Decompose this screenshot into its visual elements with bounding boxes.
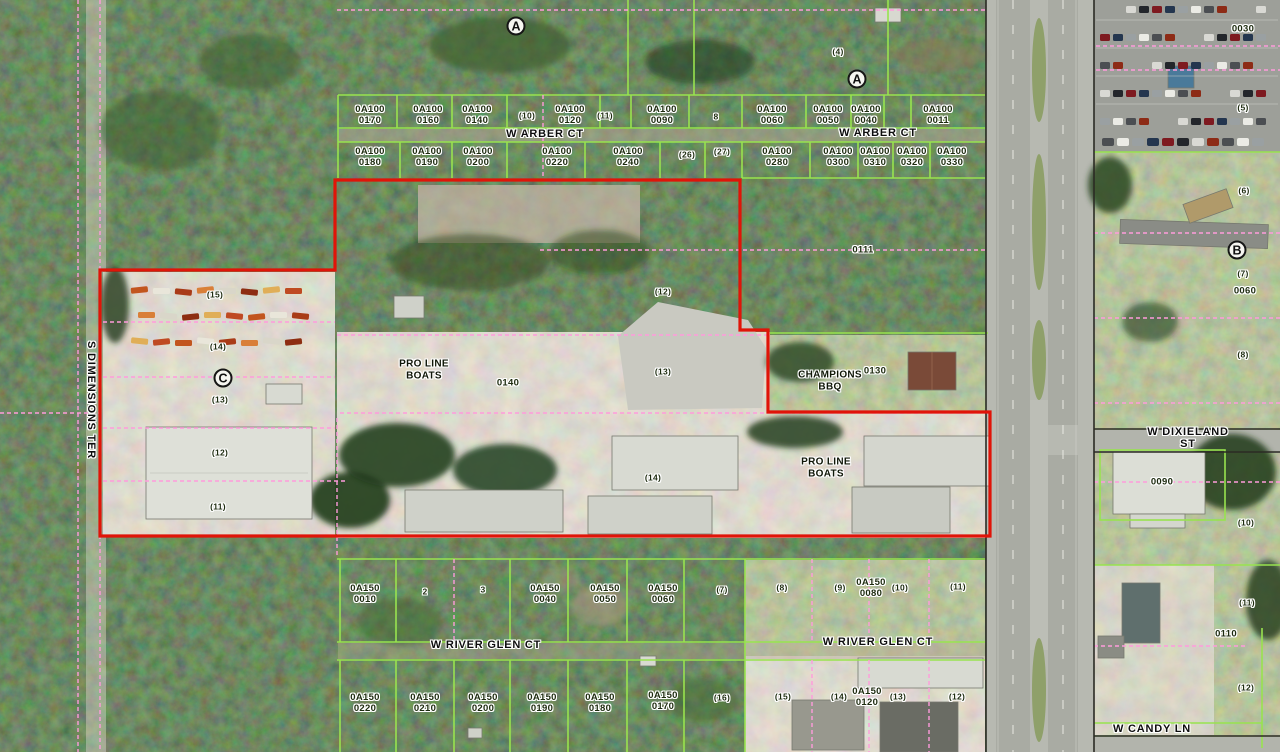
lot-number-label[interactable]: (9) [834,584,845,593]
parcel-id-label[interactable]: 0A150 0220 [350,692,380,714]
parcel-id-label[interactable]: 0A150 0210 [410,692,440,714]
parcel-id-label[interactable]: 0130 [864,366,886,377]
parcel-id-label[interactable]: 0A100 0060 [757,104,787,126]
parcel-id-label[interactable]: 0A100 0240 [613,146,643,168]
map-labels: 0A100 01700A100 01600A100 01400A100 0120… [0,0,1280,752]
lot-number-label[interactable]: (11) [597,112,613,121]
parcel-id-label[interactable]: 0A100 0090 [647,104,677,126]
parcel-id-label[interactable]: 0A150 0180 [585,692,615,714]
area-marker: C [214,369,233,388]
street-name-label: W CANDY LN [1113,723,1191,735]
lot-number-label[interactable]: (15) [207,291,223,300]
parcel-id-label[interactable]: 0A100 0180 [355,146,385,168]
lot-number-label[interactable]: (10) [892,584,908,593]
lot-number-label[interactable]: (13) [212,396,228,405]
parcel-id-label[interactable]: 0110 [1215,629,1237,640]
lot-number-label[interactable]: (26) [679,151,695,160]
lot-number-label[interactable]: 2 [422,588,427,597]
parcel-id-label[interactable]: 0A150 0120 [852,686,882,708]
street-name-label: W ARBER CT [506,128,584,140]
parcel-id-label[interactable]: 0030 [1232,24,1254,35]
parcel-id-label[interactable]: 0A100 0280 [762,146,792,168]
street-name-label: S DIMENSIONS TER [85,341,97,459]
parcel-id-label[interactable]: 0A100 0220 [542,146,572,168]
lot-number-label[interactable]: (12) [1238,684,1254,693]
street-name-label: W DIXIELAND ST [1142,426,1234,450]
parcel-id-label[interactable]: 0A150 0010 [350,583,380,605]
parcel-id-label[interactable]: 0A100 0330 [937,146,967,168]
parcel-id-label[interactable]: 0A100 0011 [923,104,953,126]
parcel-id-label[interactable]: 0A100 0050 [813,104,843,126]
lot-number-label[interactable]: (14) [645,474,661,483]
parcel-id-label[interactable]: 0A150 0080 [856,577,886,599]
parcel-id-label[interactable]: 0A150 0170 [648,690,678,712]
business-name-label: CHAMPIONS BBQ [798,370,862,393]
area-marker: A [848,70,867,89]
parcel-id-label[interactable]: 0A150 0190 [527,692,557,714]
parcel-id-label[interactable]: 0A150 0060 [648,583,678,605]
lot-number-label[interactable]: (15) [775,693,791,702]
parcel-id-label[interactable]: 0A100 0190 [412,146,442,168]
business-name-label: PRO LINE BOATS [399,359,449,382]
lot-number-label[interactable]: (13) [655,368,671,377]
lot-number-label[interactable]: (13) [890,693,906,702]
map-canvas[interactable]: 0A100 01700A100 01600A100 01400A100 0120… [0,0,1280,752]
parcel-id-label[interactable]: 0A100 0120 [555,104,585,126]
parcel-id-label[interactable]: 0A150 0040 [530,583,560,605]
lot-number-label[interactable]: (7) [716,586,727,595]
lot-number-label[interactable]: (27) [714,148,730,157]
lot-number-label[interactable]: 3 [480,586,485,595]
parcel-id-label[interactable]: 0A100 0140 [462,104,492,126]
lot-number-label[interactable]: (14) [831,693,847,702]
parcel-id-label[interactable]: 0A100 0200 [463,146,493,168]
lot-number-label[interactable]: (11) [950,583,966,592]
parcel-id-label[interactable]: 0A100 0040 [851,104,881,126]
lot-number-label[interactable]: (12) [655,288,671,297]
parcel-id-label[interactable]: 0A100 0300 [823,146,853,168]
lot-number-label[interactable]: (10) [1238,519,1254,528]
street-name-label: W RIVER GLEN CT [823,636,933,648]
lot-number-label[interactable]: (4) [832,48,843,57]
lot-number-label[interactable]: (6) [1238,187,1249,196]
parcel-id-label[interactable]: 0A100 0170 [355,104,385,126]
lot-number-label[interactable]: (12) [949,693,965,702]
parcel-id-label[interactable]: 0A150 0200 [468,692,498,714]
lot-number-label[interactable]: (7) [1237,270,1248,279]
parcel-id-label[interactable]: 0060 [1234,286,1256,297]
street-name-label: W RIVER GLEN CT [431,639,541,651]
parcel-id-label[interactable]: 0A100 0320 [897,146,927,168]
parcel-id-label[interactable]: 0140 [497,378,519,389]
parcel-id-label[interactable]: 0090 [1151,477,1173,488]
lot-number-label[interactable]: (14) [210,343,226,352]
parcel-id-label[interactable]: 0111 [852,245,873,256]
area-marker: B [1228,241,1247,260]
lot-number-label[interactable]: (8) [776,584,787,593]
business-name-label: PRO LINE BOATS [801,457,851,480]
lot-number-label[interactable]: (11) [210,503,226,512]
lot-number-label[interactable]: 8 [713,113,718,122]
area-marker: A [507,17,526,36]
lot-number-label[interactable]: (12) [212,449,228,458]
parcel-id-label[interactable]: 0A100 0310 [860,146,890,168]
street-name-label: W ARBER CT [839,127,917,139]
lot-number-label[interactable]: (11) [1239,599,1255,608]
lot-number-label[interactable]: (16) [714,694,730,703]
parcel-id-label[interactable]: 0A150 0050 [590,583,620,605]
lot-number-label[interactable]: (10) [519,112,535,121]
parcel-id-label[interactable]: 0A100 0160 [413,104,443,126]
lot-number-label[interactable]: (5) [1237,104,1248,113]
lot-number-label[interactable]: (8) [1237,351,1248,360]
